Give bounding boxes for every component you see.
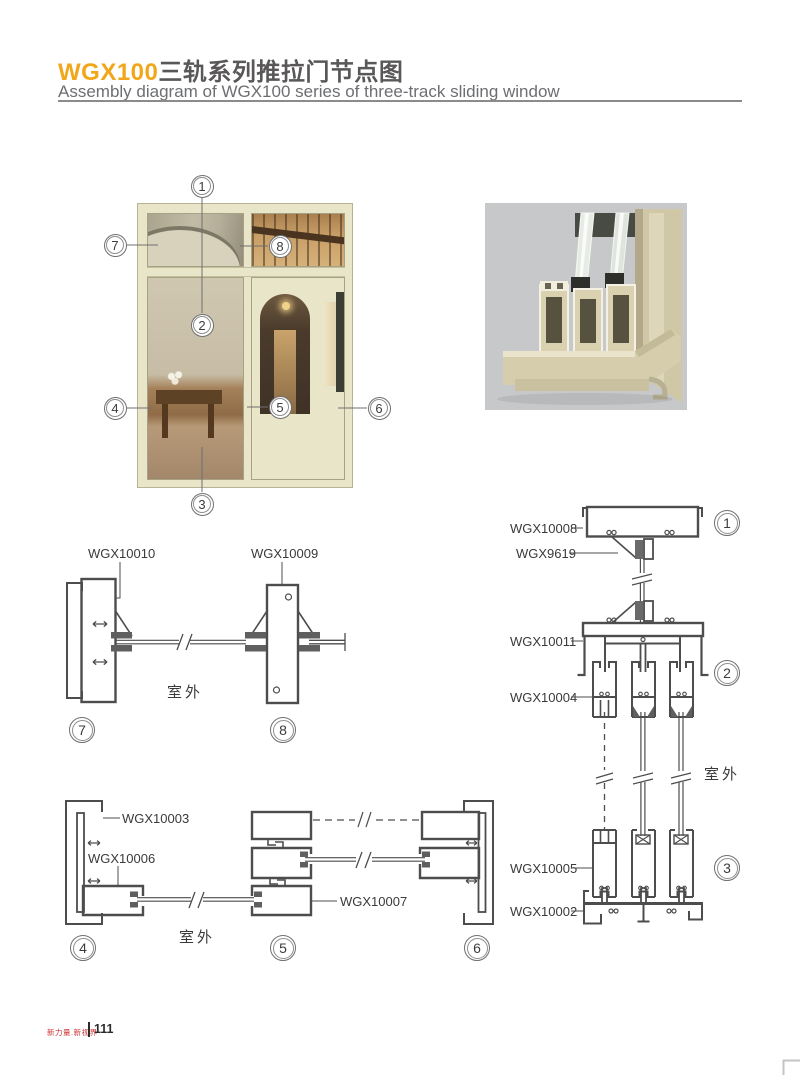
callout-3: 3 — [191, 493, 214, 516]
label-wgx10003: WGX10003 — [122, 811, 189, 826]
marker-8: 8 — [270, 717, 296, 743]
photo-pane-main-right — [251, 277, 345, 480]
callout-6: 6 — [368, 397, 391, 420]
orchid-plant — [166, 370, 184, 386]
label-wgx10007: WGX10007 — [340, 894, 407, 909]
transom-divider — [147, 267, 345, 277]
outdoor-label-123: 室外 — [704, 763, 740, 784]
label-wgx10011: WGX10011 — [510, 634, 576, 649]
section-1-2-3-drawing — [569, 507, 709, 924]
footer-page-number: 111 — [88, 1022, 113, 1037]
label-wgx10006: WGX10006 — [88, 851, 155, 866]
callout-1: 1 — [191, 175, 214, 198]
marker-4: 4 — [70, 935, 96, 961]
callout-2: 2 — [191, 314, 214, 337]
callout-5: 5 — [269, 396, 292, 419]
stair-rail — [251, 225, 345, 245]
label-wgx10008: WGX10008 — [510, 521, 577, 536]
marker-7: 7 — [69, 717, 95, 743]
label-wgx10002: WGX10002 — [510, 904, 577, 919]
photo-pane-transom-right — [251, 213, 345, 267]
page-subtitle: Assembly diagram of WGX100 series of thr… — [58, 82, 560, 102]
curtain — [336, 292, 344, 392]
header-rule — [58, 100, 742, 102]
marker-6: 6 — [464, 935, 490, 961]
label-wgx10009: WGX10009 — [251, 546, 318, 561]
callout-7: 7 — [104, 234, 127, 257]
marker-3: 3 — [714, 855, 740, 881]
label-wgx10004: WGX10004 — [510, 690, 577, 705]
label-wgx9619: WGX9619 — [516, 546, 576, 561]
technical-drawing-overlay — [0, 0, 800, 1075]
marker-2: 2 — [714, 660, 740, 686]
label-wgx10005: WGX10005 — [510, 861, 577, 876]
section-7-8-drawing — [67, 562, 345, 703]
label-wgx10010: WGX10010 — [88, 546, 155, 561]
catalog-page: WGX100三轨系列推拉门节点图 Assembly diagram of WGX… — [0, 0, 800, 1075]
stair-soffit — [147, 230, 240, 267]
window-photo — [137, 203, 353, 488]
marker-5: 5 — [270, 935, 296, 961]
callout-8: 8 — [269, 235, 292, 258]
outdoor-label-78: 室外 — [167, 681, 203, 702]
photo-pane-transom-left — [147, 213, 244, 267]
photo-pane-main-left — [147, 277, 244, 480]
pendant-light — [282, 302, 290, 310]
console-table — [156, 390, 222, 404]
outdoor-label-456: 室外 — [179, 926, 215, 947]
marker-1: 1 — [714, 510, 740, 536]
corner-mark — [783, 1060, 800, 1075]
render-3d-profile — [485, 203, 687, 410]
callout-4: 4 — [104, 397, 127, 420]
